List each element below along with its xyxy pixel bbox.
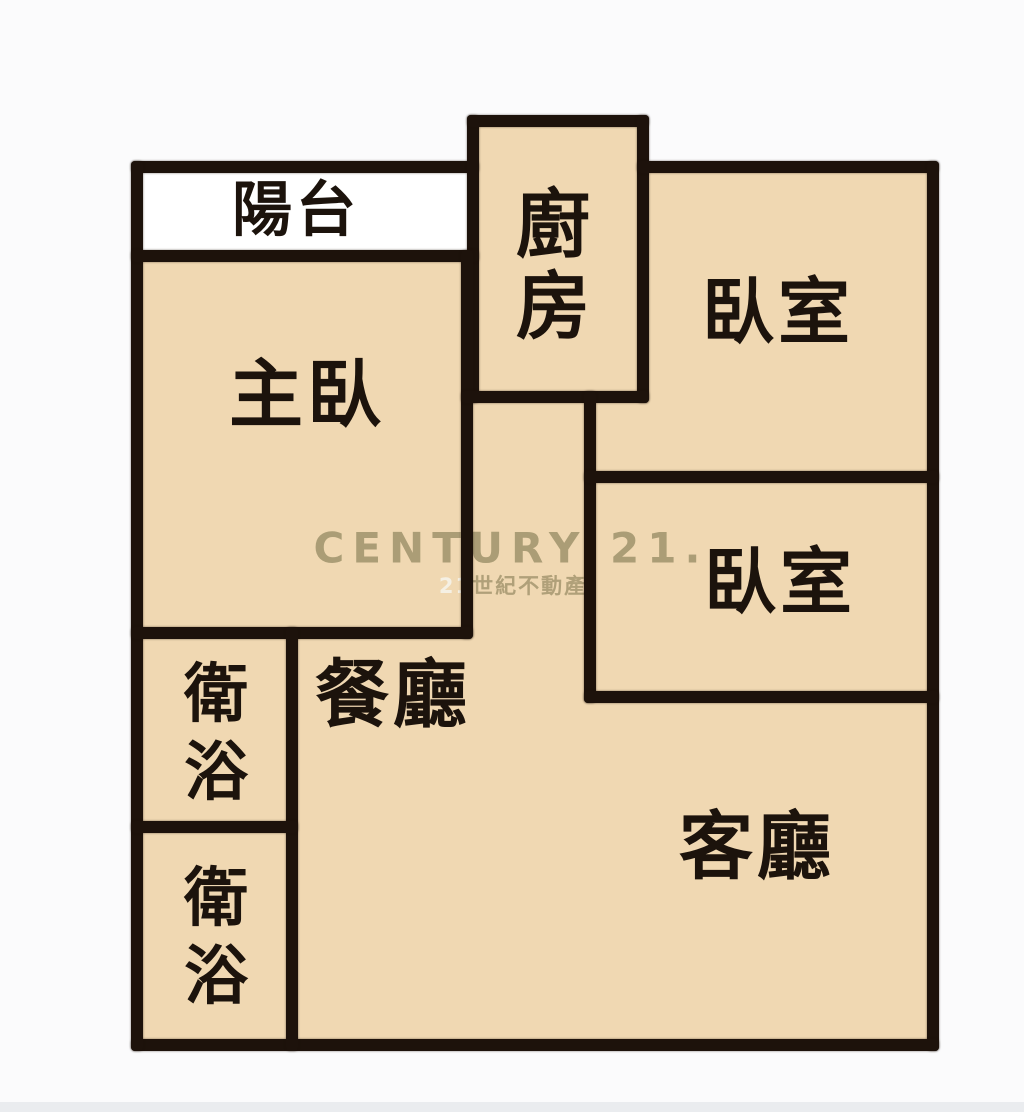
wall-bedroom-middle-left <box>584 391 596 703</box>
kitchen-label-char-2: 房 <box>516 266 590 348</box>
wall-outer-left <box>131 161 143 1051</box>
kitchen-label-char-1: 廚 <box>516 184 590 266</box>
wall-kitchen-top <box>467 115 649 127</box>
wall-bedroom-middle-bottom <box>584 691 939 703</box>
wall-master-bedroom-right <box>461 250 473 639</box>
wall-outer-bottom <box>131 1039 939 1051</box>
bathroom-lower-label-char-2: 浴 <box>184 938 248 1016</box>
bathroom-upper-label-char-1: 衛 <box>184 656 248 734</box>
wall-kitchen-right <box>637 115 649 403</box>
wall-balcony-bottom <box>131 250 479 262</box>
wall-master-bedroom-bottom <box>131 627 473 639</box>
floorplan: CENTURY 21. 21世紀不動產 陽台 廚 房 臥室 主臥 臥室 餐廳 衛… <box>0 0 1024 1112</box>
century21-watermark: CENTURY 21. <box>314 524 709 573</box>
bathroom-upper-label: 衛 浴 <box>184 656 248 812</box>
watermark-subtitle-text: 世紀不動產 <box>472 574 587 598</box>
wall-top-right <box>637 161 939 173</box>
wall-outer-right <box>927 161 939 1051</box>
living-room-label: 客廳 <box>679 809 835 887</box>
bedroom-top-right-label: 臥室 <box>702 275 854 351</box>
wall-bathroom-divider <box>131 821 298 833</box>
balcony-label: 陽台 <box>232 180 360 243</box>
master-bedroom-label: 主臥 <box>229 357 385 435</box>
kitchen-label: 廚 房 <box>516 184 590 348</box>
bathroom-upper-label-char-2: 浴 <box>184 734 248 812</box>
wall-top-left <box>131 161 479 173</box>
bathroom-lower-label: 衛 浴 <box>184 860 248 1016</box>
wall-bathroom-right <box>286 627 298 1051</box>
dining-room-label: 餐廳 <box>315 657 471 735</box>
screenshot-bottom-strip <box>0 1102 1024 1112</box>
bedroom-middle-right-label: 臥室 <box>704 545 856 621</box>
wall-bedroom-top-bottom <box>584 471 939 483</box>
wall-kitchen-bottom <box>461 391 649 403</box>
bathroom-lower-label-char-1: 衛 <box>184 860 248 938</box>
